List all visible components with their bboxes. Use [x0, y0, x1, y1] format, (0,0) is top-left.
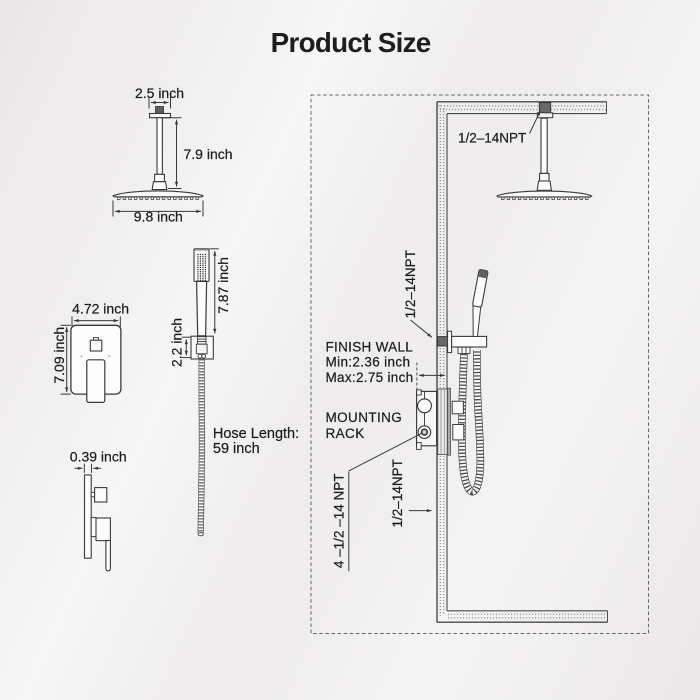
svg-text:Max:2.75 inch: Max:2.75 inch	[326, 370, 414, 385]
svg-text:RACK: RACK	[326, 426, 365, 441]
svg-text:9.8 inch: 9.8 inch	[134, 209, 183, 225]
svg-text:Hose Length:: Hose Length:	[213, 426, 299, 442]
svg-text:7.87 inch: 7.87 inch	[215, 257, 231, 314]
svg-text:4.72 inch: 4.72 inch	[72, 301, 129, 317]
svg-text:4 –1/2 –14 NPT: 4 –1/2 –14 NPT	[332, 474, 347, 569]
svg-text:59 inch: 59 inch	[213, 441, 260, 457]
svg-text:0.39 inch: 0.39 inch	[70, 448, 127, 464]
svg-text:7.9 inch: 7.9 inch	[184, 146, 233, 162]
svg-text:2.2 inch: 2.2 inch	[168, 318, 184, 367]
svg-text:2.5 inch: 2.5 inch	[135, 85, 184, 101]
svg-text:FINISH WALL: FINISH WALL	[326, 339, 414, 354]
svg-text:Min:2.36 inch: Min:2.36 inch	[326, 355, 411, 370]
svg-text:MOUNTING: MOUNTING	[326, 410, 403, 425]
svg-text:1/2–14NPT: 1/2–14NPT	[403, 250, 418, 318]
svg-text:Product Size: Product Size	[271, 27, 431, 58]
svg-text:7.09 inch: 7.09 inch	[51, 327, 67, 384]
svg-text:1/2–14NPT: 1/2–14NPT	[458, 131, 526, 146]
svg-text:1/2–14NPT: 1/2–14NPT	[390, 459, 405, 527]
